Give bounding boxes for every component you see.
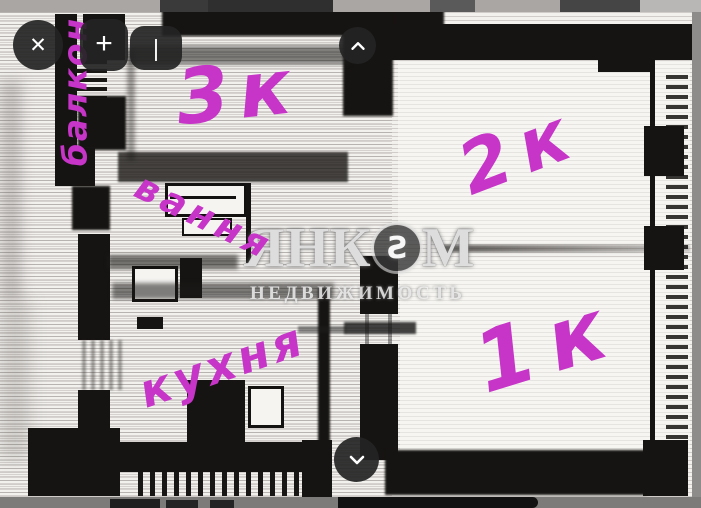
wall-kitchen-right (318, 288, 330, 446)
add-button[interactable]: + (80, 19, 128, 71)
kitchen-counter-bit (137, 317, 163, 329)
wall-cross-tick (344, 322, 416, 334)
strip-segment (640, 0, 701, 12)
strip-segment (208, 0, 333, 12)
top-gray-strip (0, 0, 701, 12)
wall-right-block (644, 226, 684, 270)
wall-left (78, 234, 110, 340)
logo-letter: S (385, 231, 408, 266)
fixture-box (248, 386, 284, 428)
watermark-brand: ЯНК S М (244, 216, 475, 280)
wall-room2-top-corner (598, 24, 655, 72)
close-icon: ✕ (29, 35, 47, 56)
shadow-smudge (0, 80, 22, 300)
strip-segment (110, 499, 160, 508)
yankom-logo-icon: S (374, 225, 420, 271)
chevron-up-icon (347, 35, 369, 57)
photo-markup-screen: ЯНК S М НЕДВИЖИМОСТЬ балкон 3к 2к вання … (0, 0, 701, 508)
watermark-brand-part2: М (422, 216, 476, 280)
watermark-subtitle: НЕДВИЖИМОСТЬ (250, 283, 475, 305)
right-gray-strip (692, 12, 701, 497)
stroke-width-button[interactable]: | (130, 26, 182, 70)
strip-segment (430, 0, 475, 12)
strip-segment (160, 0, 208, 12)
strip-segment (560, 0, 640, 12)
annotation-room-3k: 3к (172, 48, 304, 137)
door-opening (82, 340, 126, 390)
close-button[interactable]: ✕ (13, 20, 63, 70)
wall-tick-left (298, 326, 346, 333)
wall-right-bottom-corner (643, 440, 688, 496)
bottom-gray-strip (0, 497, 701, 508)
window-hatch-bottom (138, 472, 303, 496)
wall-left (72, 186, 110, 230)
wall-bottom-piece (302, 440, 332, 497)
wall-kitchen-bottom (110, 442, 318, 472)
shadow-smudge (0, 300, 30, 460)
chevron-down-icon (345, 448, 369, 472)
strip-segment (338, 497, 538, 508)
wall-bottom-left-blob (28, 428, 120, 496)
scroll-up-button[interactable] (339, 27, 376, 64)
wall-room1-bottom (385, 450, 647, 495)
plus-icon: + (95, 29, 113, 62)
wall-right-block (644, 126, 684, 176)
vertical-bar-icon: | (153, 37, 159, 60)
strip-segment (166, 500, 198, 508)
strip-segment (210, 500, 234, 508)
scroll-down-button[interactable] (334, 437, 379, 482)
